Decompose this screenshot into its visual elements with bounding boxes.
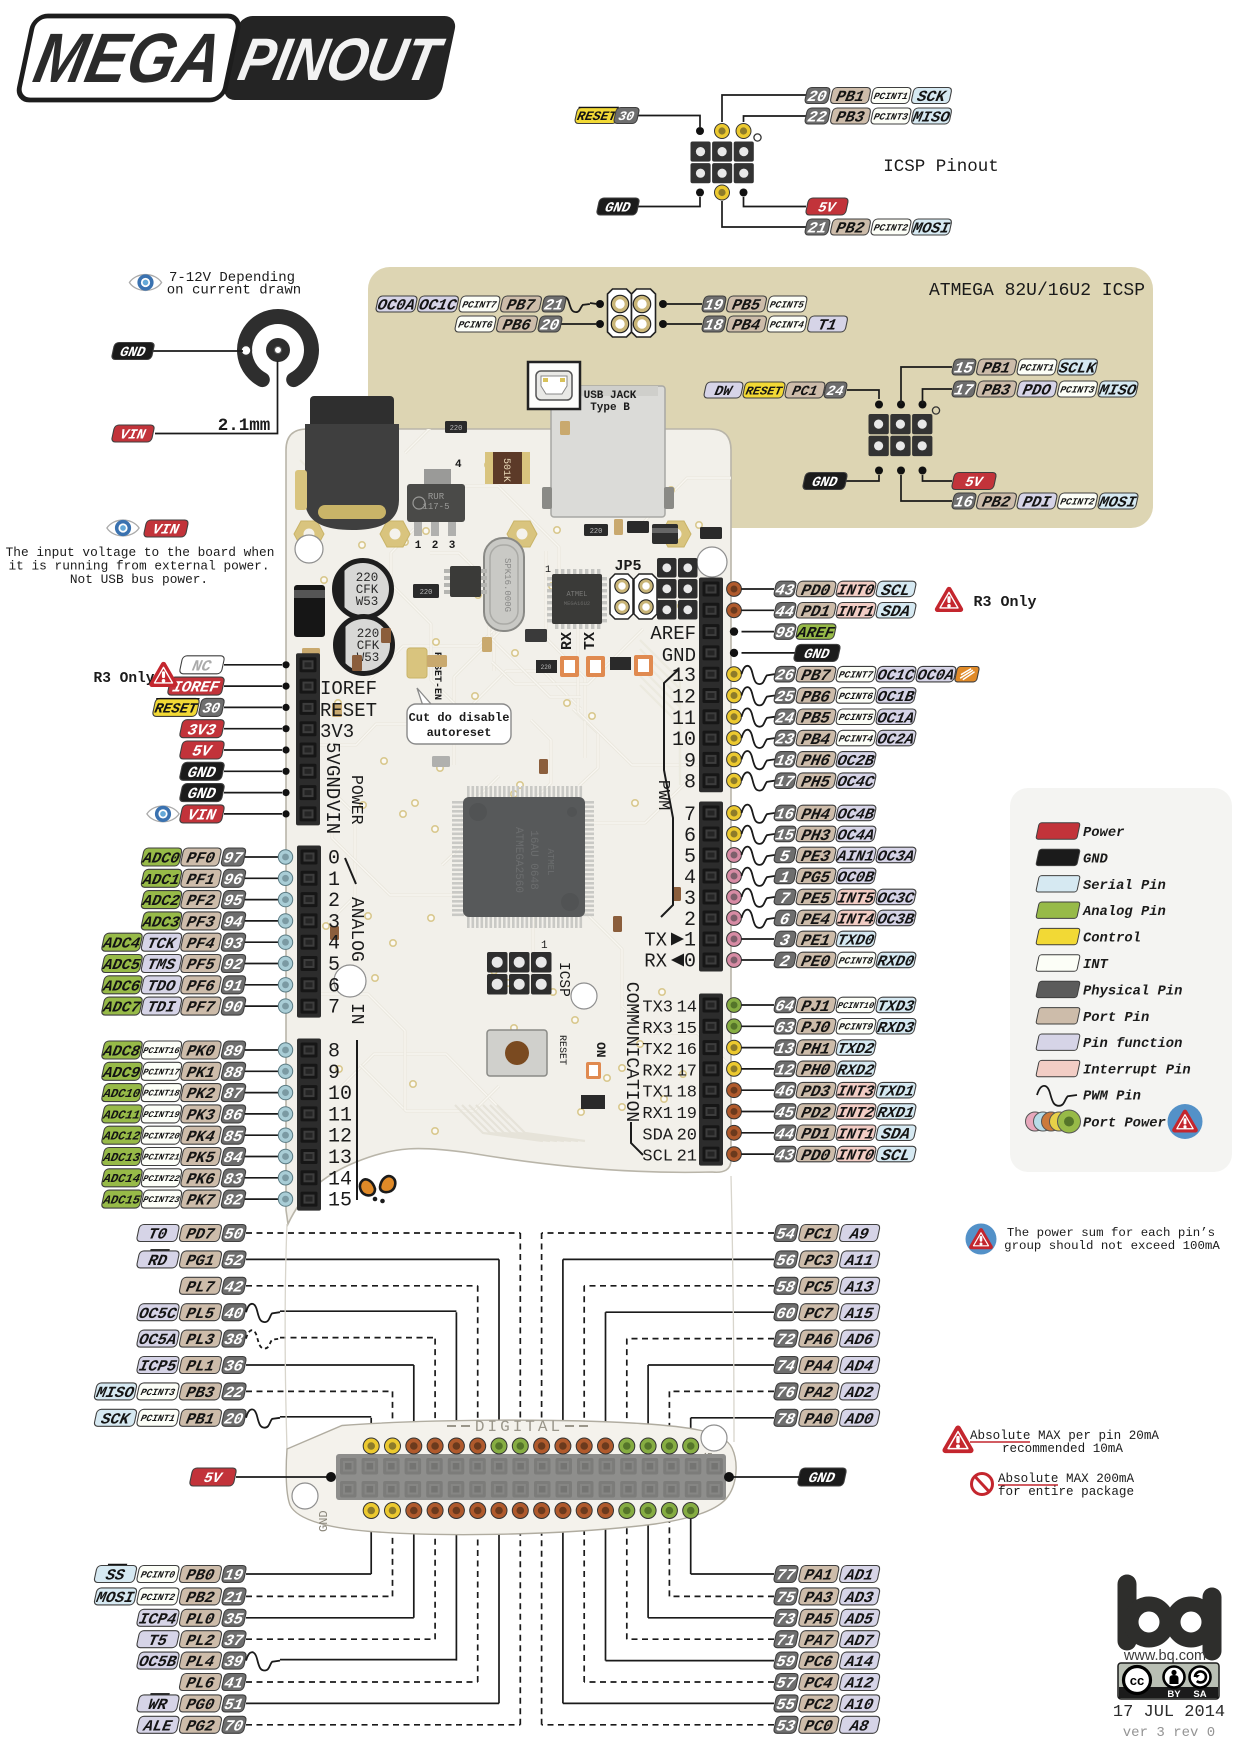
svg-text:PA4: PA4 xyxy=(803,1358,835,1376)
svg-text:3: 3 xyxy=(449,540,456,552)
svg-text:RX2: RX2 xyxy=(642,1062,673,1081)
svg-text:91: 91 xyxy=(222,978,244,996)
svg-text:PCINT17: PCINT17 xyxy=(142,1067,181,1077)
svg-text:PCINT20: PCINT20 xyxy=(142,1131,181,1141)
svg-text:16: 16 xyxy=(774,806,796,824)
svg-text:17: 17 xyxy=(677,1062,697,1081)
svg-text:PC5: PC5 xyxy=(803,1279,835,1297)
svg-text:51: 51 xyxy=(222,1696,244,1714)
svg-text:T1: T1 xyxy=(816,317,838,335)
svg-text:PL1: PL1 xyxy=(184,1358,216,1376)
svg-text:MOSI: MOSI xyxy=(910,220,952,238)
svg-text:ICSP: ICSP xyxy=(555,962,571,997)
svg-text:501K: 501K xyxy=(500,458,511,482)
svg-text:1: 1 xyxy=(415,540,422,552)
svg-text:Interrupt Pin: Interrupt Pin xyxy=(1083,1063,1191,1079)
svg-text:OC0A: OC0A xyxy=(376,297,417,315)
svg-text:96: 96 xyxy=(222,871,244,889)
svg-text:PDI: PDI xyxy=(1021,494,1053,512)
svg-text:84: 84 xyxy=(222,1149,244,1167)
svg-text:GND: GND xyxy=(1083,852,1109,867)
svg-text:INT1: INT1 xyxy=(836,603,876,621)
svg-text:BY: BY xyxy=(1167,1689,1181,1700)
svg-text:Pin function: Pin function xyxy=(1083,1036,1182,1052)
svg-text:ver 3 rev 0: ver 3 rev 0 xyxy=(1123,1725,1215,1741)
svg-text:PCINT5: PCINT5 xyxy=(769,299,806,310)
svg-text:PCINT10: PCINT10 xyxy=(837,1001,876,1011)
svg-text:SCK: SCK xyxy=(915,88,948,106)
svg-text:RX: RX xyxy=(559,632,576,650)
svg-text:RXD0: RXD0 xyxy=(876,953,916,971)
svg-text:GND: GND xyxy=(321,765,343,799)
svg-text:PB2: PB2 xyxy=(834,220,866,238)
svg-text:PB1: PB1 xyxy=(184,1411,216,1429)
svg-text:GND: GND xyxy=(186,785,218,803)
svg-text:ADC9: ADC9 xyxy=(101,1064,142,1082)
svg-text:20: 20 xyxy=(806,88,828,106)
svg-text:PF5: PF5 xyxy=(185,956,217,974)
svg-text:PCINT8: PCINT8 xyxy=(838,955,875,966)
svg-text:PA5: PA5 xyxy=(803,1611,835,1629)
svg-text:TX2: TX2 xyxy=(642,1041,673,1060)
svg-text:on current drawn: on current drawn xyxy=(167,283,301,299)
svg-text:7: 7 xyxy=(684,804,696,827)
svg-text:PG0: PG0 xyxy=(184,1696,216,1714)
svg-text:19: 19 xyxy=(702,297,724,315)
svg-text:INT4: INT4 xyxy=(836,911,876,929)
svg-text:OC0A: OC0A xyxy=(916,667,956,685)
svg-text:GND: GND xyxy=(118,345,147,361)
svg-text:PCINT19: PCINT19 xyxy=(142,1110,181,1120)
svg-text:PCINT2: PCINT2 xyxy=(873,222,910,233)
svg-text:90: 90 xyxy=(222,999,244,1017)
svg-text:PCINT4: PCINT4 xyxy=(838,734,875,745)
svg-text:16: 16 xyxy=(952,494,974,512)
svg-text:A14: A14 xyxy=(842,1653,875,1671)
svg-text:A10: A10 xyxy=(842,1696,875,1714)
svg-text:SCK: SCK xyxy=(99,1411,132,1429)
svg-text:TX: TX xyxy=(644,930,667,952)
svg-text:RX1: RX1 xyxy=(642,1105,673,1124)
svg-text:PL4: PL4 xyxy=(184,1653,216,1671)
svg-text:6: 6 xyxy=(684,825,696,848)
svg-text:PL3: PL3 xyxy=(184,1331,216,1349)
svg-text:30: 30 xyxy=(201,702,222,718)
svg-text:PL7: PL7 xyxy=(184,1279,216,1297)
svg-text:60: 60 xyxy=(774,1305,796,1323)
svg-text:PCINT23: PCINT23 xyxy=(142,1195,181,1205)
svg-text:PH3: PH3 xyxy=(799,827,832,845)
svg-text:PC1: PC1 xyxy=(803,1226,835,1244)
svg-text:A11: A11 xyxy=(842,1252,875,1270)
svg-text:ADC15: ADC15 xyxy=(101,1194,142,1208)
svg-text:MEGA: MEGA xyxy=(28,19,230,97)
svg-text:19: 19 xyxy=(222,1567,244,1585)
svg-text:PB7: PB7 xyxy=(505,297,537,315)
svg-text:PC6: PC6 xyxy=(803,1653,835,1671)
svg-text:70: 70 xyxy=(222,1718,244,1736)
svg-text:Type B: Type B xyxy=(590,402,630,414)
svg-text:OC4A: OC4A xyxy=(836,827,876,845)
svg-text:4: 4 xyxy=(328,933,340,956)
svg-text:13: 13 xyxy=(672,665,696,688)
svg-text:46: 46 xyxy=(774,1083,796,1101)
svg-text:PB6: PB6 xyxy=(501,317,533,335)
svg-text:PK0: PK0 xyxy=(185,1043,217,1061)
svg-text:MEGA16U2: MEGA16U2 xyxy=(564,600,590,607)
svg-text:26: 26 xyxy=(774,667,796,685)
svg-text:PINOUT: PINOUT xyxy=(233,26,450,93)
svg-text:ADC0: ADC0 xyxy=(140,850,181,868)
svg-text:9: 9 xyxy=(684,750,696,773)
svg-text:ADC12: ADC12 xyxy=(101,1130,142,1144)
svg-text:COMMUNICATION: COMMUNICATION xyxy=(621,982,641,1122)
svg-text:4: 4 xyxy=(455,459,462,471)
svg-text:PWM: PWM xyxy=(653,780,672,811)
svg-text:11: 11 xyxy=(328,1104,352,1127)
svg-text:RESET: RESET xyxy=(320,700,377,722)
svg-text:10: 10 xyxy=(672,729,696,752)
svg-text:OC1B: OC1B xyxy=(876,688,917,706)
svg-text:PCINT5: PCINT5 xyxy=(838,712,875,723)
svg-text:RESET: RESET xyxy=(744,384,784,398)
svg-text:MISO: MISO xyxy=(910,109,952,127)
svg-text:Power: Power xyxy=(1083,826,1124,841)
svg-text:R3 Only: R3 Only xyxy=(94,671,155,687)
svg-text:4: 4 xyxy=(684,867,696,890)
svg-text:GND: GND xyxy=(662,645,696,667)
svg-text:PCINT16: PCINT16 xyxy=(142,1046,181,1056)
svg-text:TX1: TX1 xyxy=(642,1084,673,1103)
svg-text:PCINT3: PCINT3 xyxy=(1059,384,1096,395)
svg-text:PK5: PK5 xyxy=(185,1149,217,1167)
svg-text:TDO: TDO xyxy=(145,978,177,996)
svg-text:ATMEL: ATMEL xyxy=(566,591,587,599)
svg-text:ICP4: ICP4 xyxy=(137,1611,178,1629)
svg-text:A12: A12 xyxy=(842,1675,875,1693)
svg-text:PC0: PC0 xyxy=(803,1718,835,1736)
svg-text:40: 40 xyxy=(222,1305,244,1323)
svg-text:AD0: AD0 xyxy=(842,1411,875,1429)
svg-text:PC4: PC4 xyxy=(803,1675,835,1693)
svg-text:0: 0 xyxy=(328,848,340,871)
svg-text:PG2: PG2 xyxy=(184,1718,216,1736)
svg-text:9: 9 xyxy=(328,1062,340,1085)
svg-text:SA: SA xyxy=(1193,1689,1206,1700)
svg-text:PCINT1: PCINT1 xyxy=(140,1413,177,1424)
svg-text:21: 21 xyxy=(677,1148,697,1167)
svg-text:PG5: PG5 xyxy=(799,869,832,887)
svg-text:autoreset: autoreset xyxy=(427,726,492,740)
svg-text:PB3: PB3 xyxy=(834,109,866,127)
svg-text:A9: A9 xyxy=(847,1226,870,1244)
svg-text:RXD3: RXD3 xyxy=(876,1019,916,1037)
svg-text:ADC7: ADC7 xyxy=(101,999,143,1017)
svg-text:OC4C: OC4C xyxy=(836,773,877,791)
svg-text:PF2: PF2 xyxy=(185,892,217,910)
svg-text:RXD2: RXD2 xyxy=(836,1062,876,1080)
svg-text:56: 56 xyxy=(774,1252,796,1270)
svg-text:GND: GND xyxy=(186,764,218,782)
svg-text:Port Power: Port Power xyxy=(1083,1117,1166,1132)
svg-text:PA2: PA2 xyxy=(803,1384,835,1402)
svg-text:VIN: VIN xyxy=(151,523,181,539)
svg-text:INT0: INT0 xyxy=(836,1147,876,1165)
svg-text:PA3: PA3 xyxy=(803,1589,835,1607)
svg-text:PH0: PH0 xyxy=(799,1062,832,1080)
svg-text:OC5A: OC5A xyxy=(137,1331,178,1349)
svg-text:Not USB bus power.: Not USB bus power. xyxy=(70,572,208,587)
svg-text:OC3B: OC3B xyxy=(876,911,917,929)
svg-text:SDA: SDA xyxy=(642,1126,673,1145)
svg-text:86: 86 xyxy=(222,1107,244,1125)
svg-text:IOREF: IOREF xyxy=(320,678,377,700)
svg-text:PL2: PL2 xyxy=(184,1632,216,1650)
svg-text:INT2: INT2 xyxy=(836,1104,876,1122)
svg-text:GND: GND xyxy=(810,475,839,491)
svg-text:PCINT3: PCINT3 xyxy=(140,1387,177,1398)
svg-text:PA6: PA6 xyxy=(803,1331,835,1349)
svg-text:Cut do disable: Cut do disable xyxy=(409,711,510,725)
svg-text:PCINT1: PCINT1 xyxy=(1019,362,1056,373)
svg-text:44: 44 xyxy=(774,1125,796,1143)
svg-text:Port Pin: Port Pin xyxy=(1083,1010,1149,1026)
svg-text:SCL: SCL xyxy=(642,1148,673,1167)
svg-text:GND: GND xyxy=(802,647,831,663)
svg-text:3V3: 3V3 xyxy=(186,721,218,739)
svg-text:TX3: TX3 xyxy=(642,999,673,1018)
svg-text:5: 5 xyxy=(684,846,696,869)
svg-text:PA1: PA1 xyxy=(803,1567,835,1585)
svg-text:PD0: PD0 xyxy=(799,582,832,600)
svg-text:PK1: PK1 xyxy=(185,1064,217,1082)
svg-text:PCINT2: PCINT2 xyxy=(1059,496,1096,507)
svg-text:ANALOG: ANALOG xyxy=(346,897,366,962)
svg-text:TXD1: TXD1 xyxy=(876,1083,916,1101)
svg-text:INT3: INT3 xyxy=(836,1083,876,1101)
svg-text:TCK: TCK xyxy=(145,935,178,953)
svg-text:OC5C: OC5C xyxy=(137,1305,179,1323)
svg-text:USB JACK: USB JACK xyxy=(584,390,637,402)
svg-text:36: 36 xyxy=(222,1358,244,1376)
svg-text:PL5: PL5 xyxy=(184,1305,216,1323)
svg-text:PC2: PC2 xyxy=(803,1696,835,1714)
svg-text:ADC2: ADC2 xyxy=(140,892,181,910)
svg-text:PCINT6: PCINT6 xyxy=(838,691,875,702)
svg-text:41: 41 xyxy=(222,1675,244,1693)
svg-text:21: 21 xyxy=(222,1589,244,1607)
svg-text:ON: ON xyxy=(593,1042,608,1058)
svg-text:1: 1 xyxy=(541,940,548,952)
svg-text:PCINT7: PCINT7 xyxy=(838,670,875,681)
svg-text:PJ0: PJ0 xyxy=(799,1019,832,1037)
svg-text:PB0: PB0 xyxy=(184,1567,216,1585)
svg-text:18: 18 xyxy=(677,1084,697,1103)
svg-text:PC7: PC7 xyxy=(803,1305,835,1323)
svg-text:24: 24 xyxy=(825,384,845,400)
svg-text:AD5: AD5 xyxy=(842,1611,875,1629)
svg-text:INT: INT xyxy=(1083,958,1109,973)
svg-text:RESET: RESET xyxy=(153,702,200,718)
svg-text:ADC6: ADC6 xyxy=(101,977,142,995)
svg-text:20: 20 xyxy=(222,1411,244,1429)
svg-text:TXD3: TXD3 xyxy=(876,998,916,1016)
svg-text:Physical Pin: Physical Pin xyxy=(1083,983,1182,999)
svg-text:PF1: PF1 xyxy=(185,871,217,889)
svg-text:PCINT2: PCINT2 xyxy=(140,1592,177,1603)
svg-text:GND: GND xyxy=(807,1471,837,1487)
svg-text:74: 74 xyxy=(774,1358,796,1376)
svg-text:16: 16 xyxy=(677,1041,697,1060)
svg-text:PDO: PDO xyxy=(1021,382,1053,400)
svg-text:IN: IN xyxy=(346,1003,366,1025)
svg-text:98: 98 xyxy=(774,624,796,642)
svg-text:TXD2: TXD2 xyxy=(836,1040,876,1058)
svg-text:SCL: SCL xyxy=(879,582,912,600)
svg-text:INT5: INT5 xyxy=(836,890,876,908)
svg-text:12: 12 xyxy=(328,1126,352,1149)
svg-text:The power sum for each pin’s: The power sum for each pin’s xyxy=(1007,1226,1215,1240)
svg-text:SDA: SDA xyxy=(879,603,912,621)
svg-text:54: 54 xyxy=(774,1226,796,1244)
svg-text:VIN: VIN xyxy=(118,428,147,444)
svg-text:OC4B: OC4B xyxy=(836,806,877,824)
svg-text:PJ1: PJ1 xyxy=(799,998,832,1016)
svg-text:GND: GND xyxy=(603,201,632,217)
svg-text:PB6: PB6 xyxy=(799,688,832,706)
svg-text:PCINT21: PCINT21 xyxy=(142,1153,181,1163)
svg-text:ATMEGA2560: ATMEGA2560 xyxy=(512,827,524,893)
svg-text:15: 15 xyxy=(328,1190,352,1213)
svg-text:W53: W53 xyxy=(356,595,379,609)
svg-text:recommended 10mA: recommended 10mA xyxy=(1002,1442,1123,1456)
svg-text:PB4: PB4 xyxy=(799,731,832,749)
svg-text:PCINT1: PCINT1 xyxy=(873,91,910,102)
svg-text:8: 8 xyxy=(328,1041,340,1064)
svg-text:220: 220 xyxy=(590,528,603,536)
svg-text:TMS: TMS xyxy=(145,956,177,974)
svg-text:PD7: PD7 xyxy=(184,1226,216,1244)
svg-text:PB4: PB4 xyxy=(730,317,762,335)
svg-text:T0: T0 xyxy=(146,1226,168,1244)
svg-text:PE0: PE0 xyxy=(799,953,832,971)
svg-text:Control: Control xyxy=(1083,931,1141,947)
svg-text:AD4: AD4 xyxy=(842,1358,875,1376)
svg-text:20: 20 xyxy=(677,1126,697,1145)
svg-text:44: 44 xyxy=(774,603,796,621)
svg-text:www.bq.com: www.bq.com xyxy=(1123,1648,1206,1664)
svg-text:16AU 0648: 16AU 0648 xyxy=(527,830,539,889)
svg-text:SPK16.000G: SPK16.000G xyxy=(502,558,512,612)
svg-text:ADC8: ADC8 xyxy=(101,1043,142,1061)
svg-text:PCINT9: PCINT9 xyxy=(838,1022,875,1033)
svg-text:ALE: ALE xyxy=(141,1718,174,1736)
svg-text:PCINT22: PCINT22 xyxy=(142,1174,181,1184)
svg-text:RXD1: RXD1 xyxy=(876,1104,916,1122)
svg-text:12: 12 xyxy=(672,687,696,710)
svg-text:76: 76 xyxy=(774,1384,796,1402)
svg-text:SCL: SCL xyxy=(879,1147,912,1165)
svg-text:cc: cc xyxy=(1130,1673,1144,1688)
svg-text:SDA: SDA xyxy=(879,1126,912,1144)
svg-text:PC1: PC1 xyxy=(790,384,819,400)
svg-text:21: 21 xyxy=(542,297,564,315)
svg-text:TDI: TDI xyxy=(145,999,177,1017)
svg-text:PD1: PD1 xyxy=(799,603,832,621)
svg-text:2: 2 xyxy=(432,540,439,552)
svg-text:TX: TX xyxy=(582,632,599,650)
svg-text:RESET: RESET xyxy=(556,1035,567,1065)
svg-text:89: 89 xyxy=(222,1043,244,1061)
svg-text:VIN: VIN xyxy=(321,800,343,834)
svg-text:JP5: JP5 xyxy=(614,558,641,575)
svg-text:20: 20 xyxy=(538,317,560,335)
svg-text:PD3: PD3 xyxy=(799,1083,832,1101)
svg-text:PB2: PB2 xyxy=(980,494,1012,512)
svg-text:17 JUL 2014: 17 JUL 2014 xyxy=(1113,1703,1225,1722)
svg-text:INT1: INT1 xyxy=(836,1125,876,1143)
svg-text:PL0: PL0 xyxy=(184,1611,216,1629)
svg-text:AD1: AD1 xyxy=(842,1567,875,1585)
svg-text:Analog Pin: Analog Pin xyxy=(1082,904,1166,920)
svg-text:ADC14: ADC14 xyxy=(101,1172,141,1186)
svg-text:PA0: PA0 xyxy=(803,1411,835,1429)
svg-text:AIN1: AIN1 xyxy=(835,848,876,866)
svg-text:11: 11 xyxy=(672,708,696,731)
svg-text:group should not exceed 100mA: group should not exceed 100mA xyxy=(1004,1239,1220,1253)
svg-text:AD7: AD7 xyxy=(842,1632,875,1650)
svg-text:5: 5 xyxy=(328,954,340,977)
svg-text:DIGITAL: DIGITAL xyxy=(475,1418,563,1436)
svg-text:0: 0 xyxy=(684,951,696,974)
svg-text:117-5: 117-5 xyxy=(422,502,449,512)
svg-text:19: 19 xyxy=(677,1105,697,1124)
svg-text:50: 50 xyxy=(222,1226,244,1244)
svg-text:3: 3 xyxy=(684,888,696,911)
svg-text:OC1C: OC1C xyxy=(417,297,459,315)
svg-text:PCINT0: PCINT0 xyxy=(140,1569,177,1580)
svg-text:PK7: PK7 xyxy=(185,1192,217,1210)
svg-text:RX3: RX3 xyxy=(642,1020,673,1039)
svg-text:PC3: PC3 xyxy=(803,1252,835,1270)
svg-text:MISO: MISO xyxy=(1097,382,1139,400)
svg-text:PD1: PD1 xyxy=(799,1126,832,1144)
svg-text:3V3: 3V3 xyxy=(320,721,354,743)
svg-text:12: 12 xyxy=(774,1062,796,1080)
svg-text:10: 10 xyxy=(328,1083,352,1106)
svg-text:PE1: PE1 xyxy=(799,932,832,950)
svg-text:PG1: PG1 xyxy=(184,1252,216,1270)
svg-text:PK2: PK2 xyxy=(185,1085,217,1103)
svg-text:8: 8 xyxy=(684,772,696,795)
svg-text:13: 13 xyxy=(328,1147,352,1170)
svg-text:RESET: RESET xyxy=(576,109,619,124)
svg-text:RX: RX xyxy=(644,951,667,973)
svg-text:ADC5: ADC5 xyxy=(101,956,142,974)
svg-text:1: 1 xyxy=(328,869,340,892)
svg-text:94: 94 xyxy=(222,914,244,932)
svg-text:SCLK: SCLK xyxy=(1057,360,1099,378)
svg-text:INT0: INT0 xyxy=(836,582,876,600)
svg-text:30: 30 xyxy=(617,109,636,124)
svg-text:PH1: PH1 xyxy=(799,1041,832,1059)
svg-text:14: 14 xyxy=(328,1168,352,1191)
svg-text:5V: 5V xyxy=(321,742,343,765)
svg-text:220: 220 xyxy=(420,589,433,597)
svg-text:AD2: AD2 xyxy=(842,1384,875,1402)
svg-text:ATMEL: ATMEL xyxy=(545,848,555,875)
svg-text:PCINT3: PCINT3 xyxy=(873,111,910,122)
